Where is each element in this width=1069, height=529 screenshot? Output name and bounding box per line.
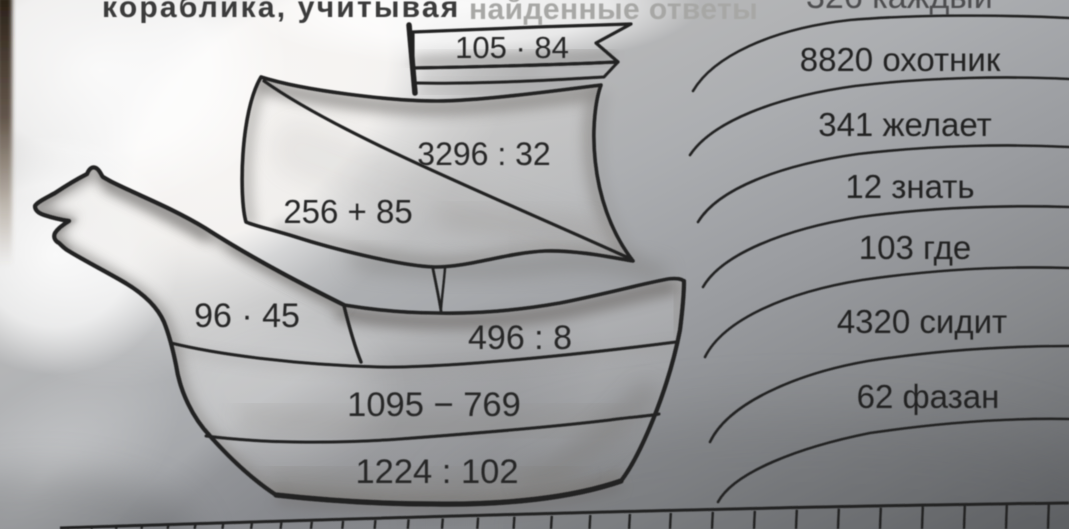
- svg-text:кораблика, учитывая: кораблика, учитывая: [102, 0, 461, 24]
- svg-text:1095 − 769: 1095 − 769: [347, 386, 521, 424]
- svg-text:341 желает: 341 желает: [818, 106, 992, 143]
- svg-text:496 : 8: 496 : 8: [468, 319, 572, 357]
- svg-text:1224 : 102: 1224 : 102: [355, 453, 518, 491]
- svg-text:8820 охотник: 8820 охотник: [800, 41, 1001, 78]
- svg-text:4320 сидит: 4320 сидит: [837, 303, 1007, 340]
- svg-text:105 · 84: 105 · 84: [455, 30, 569, 65]
- svg-text:256 + 85: 256 + 85: [283, 193, 412, 230]
- svg-text:найденные ответы: найденные ответы: [469, 0, 758, 26]
- svg-text:3296 : 32: 3296 : 32: [417, 136, 550, 172]
- svg-text:96 · 45: 96 · 45: [194, 297, 300, 335]
- svg-text:62 фазан: 62 фазан: [857, 378, 1000, 415]
- svg-text:326 каждый: 326 каждый: [806, 0, 993, 16]
- svg-text:103 где: 103 где: [859, 229, 971, 266]
- svg-text:12 знать: 12 знать: [845, 168, 974, 205]
